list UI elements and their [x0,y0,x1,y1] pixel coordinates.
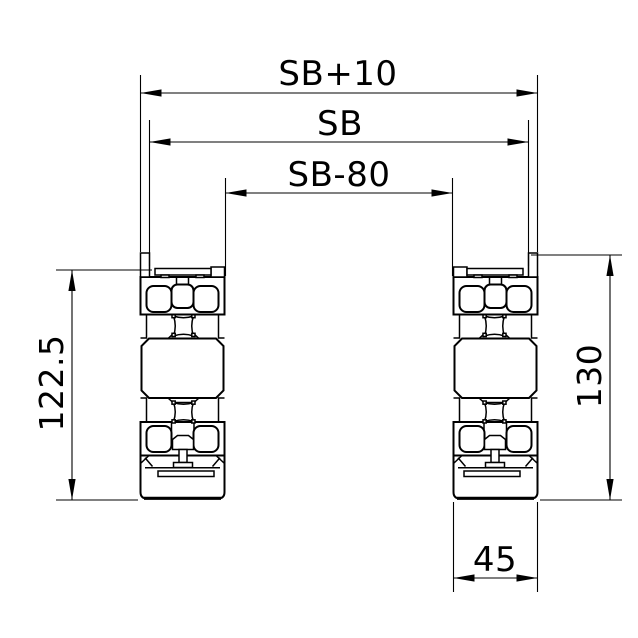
arrowhead-bottom [606,479,613,500]
dimension-45: 45 [454,502,538,592]
dim-label-outer-width: SB+10 [278,54,397,94]
right-profile-section [454,253,538,499]
arrowhead-right [517,89,538,96]
dim-label-left-height: 122.5 [32,335,71,432]
engineering-drawing: SB+10 SB SB-80 122.5 130 [0,0,638,638]
dimension-122-5: 122.5 [32,270,152,500]
arrowhead-top [606,255,613,276]
arrowhead-left [226,189,247,196]
arrowhead-right [517,574,538,581]
dimension-sb-plus-10: SB+10 [141,54,538,252]
dimension-130: 130 [531,255,622,500]
dim-label-right-height: 130 [570,344,609,409]
dim-label-inner-width: SB-80 [288,155,391,195]
dim-label-profile-width: 45 [473,540,517,580]
arrowhead-right [508,138,529,145]
arrowhead-bottom [68,479,75,500]
arrowhead-top [68,270,75,291]
drawing-canvas: SB+10 SB SB-80 122.5 130 [0,0,638,638]
dimension-sb-minus-80: SB-80 [226,155,453,276]
arrowhead-left [454,574,475,581]
arrowhead-left [150,138,171,145]
arrowhead-right [432,189,453,196]
arrowhead-left [141,89,162,96]
left-profile-section [141,253,225,499]
dim-label-nominal-width: SB [317,104,363,144]
